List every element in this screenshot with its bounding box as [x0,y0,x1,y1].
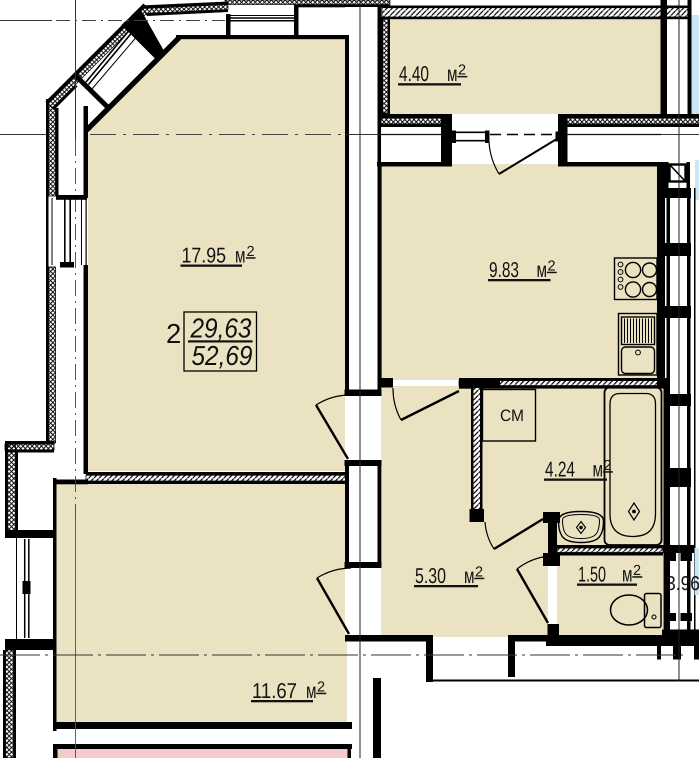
svg-text:м: м [537,258,548,282]
svg-text:м: м [593,458,604,482]
svg-text:СМ: СМ [500,407,524,425]
svg-text:4.40: 4.40 [399,62,429,86]
svg-text:м: м [464,564,475,588]
svg-text:9.83: 9.83 [489,258,519,282]
svg-text:1.50: 1.50 [578,563,606,587]
svg-text:52,69: 52,69 [192,340,253,371]
svg-text:4.24: 4.24 [545,458,575,482]
svg-text:3.96: 3.96 [666,573,699,595]
svg-text:м: м [306,679,317,703]
svg-text:29,63: 29,63 [190,313,253,344]
svg-text:м: м [235,244,246,268]
svg-text:5.30: 5.30 [415,564,446,588]
svg-text:2: 2 [166,318,181,349]
svg-text:17.95: 17.95 [182,244,227,268]
svg-text:м: м [622,563,633,587]
svg-text:11.67: 11.67 [252,679,297,703]
svg-text:м: м [447,62,458,86]
